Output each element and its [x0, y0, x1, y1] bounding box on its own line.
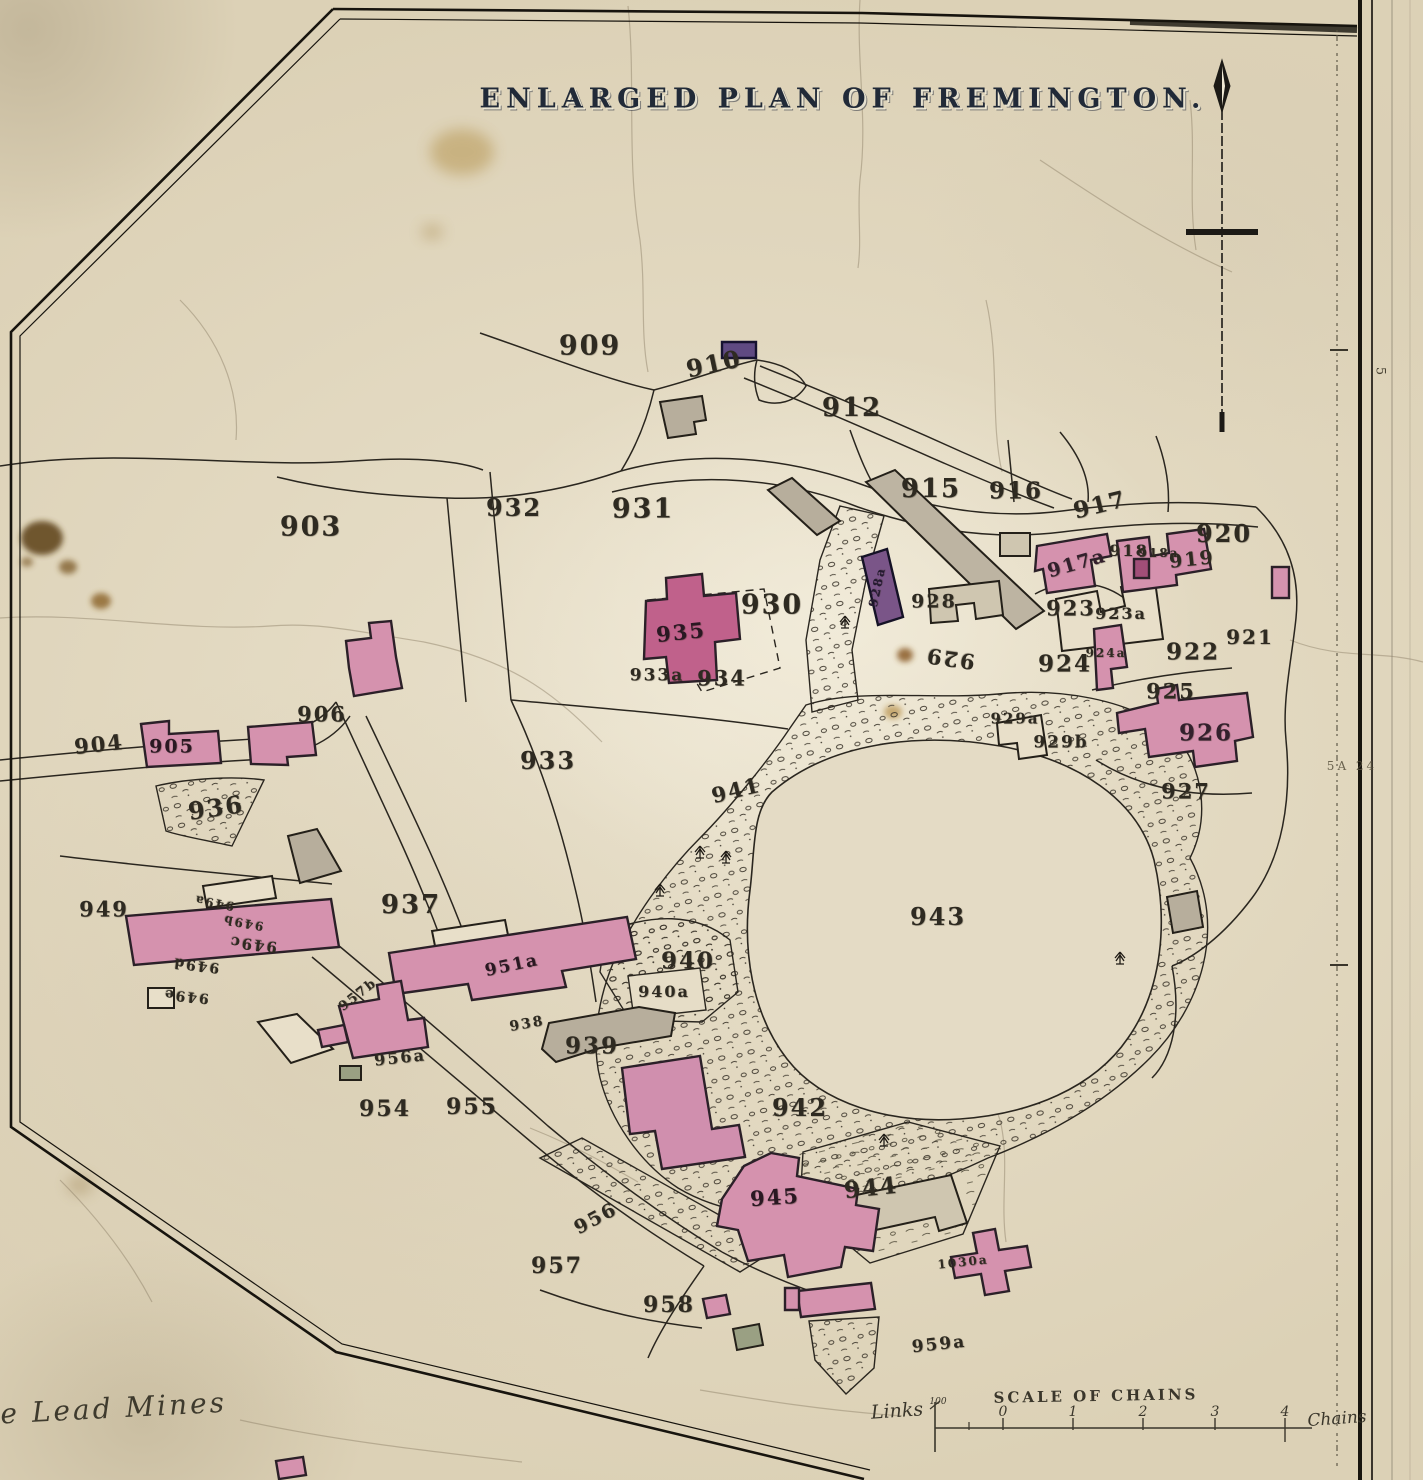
parcel-label-909: 909: [559, 333, 621, 360]
parcel-label-905: 905: [149, 738, 195, 757]
parcel-label-956a: 956a: [373, 1047, 426, 1068]
parcel-label-916: 916: [989, 480, 1043, 503]
parcel-label-931: 931: [612, 496, 674, 523]
parcel-label-925: 925: [1146, 681, 1196, 702]
parcel-label-954: 954: [359, 1098, 411, 1120]
parcel-label-926: 926: [1179, 722, 1233, 745]
parcel-label-928: 928: [911, 593, 957, 612]
parcel-label-955: 955: [446, 1096, 498, 1118]
parcel-label-924: 924: [1038, 653, 1092, 676]
parcel-label-928a: 928a: [867, 566, 887, 608]
parcel-label-923a: 923a: [1095, 606, 1147, 622]
parcel-label-949b: 949b: [222, 913, 265, 932]
parcel-label-921: 921: [1226, 627, 1274, 647]
parcel-label-935: 935: [655, 619, 707, 645]
parcel-label-944: 944: [843, 1174, 899, 1203]
parcel-label-924a: 924a: [1086, 647, 1127, 659]
parcel-label-949: 949: [79, 899, 129, 920]
parcel-label-920: 920: [1196, 522, 1252, 546]
parcel-label-929: 929: [924, 645, 976, 673]
parcel-label-904: 904: [73, 731, 125, 757]
parcel-label-919: 919: [1168, 548, 1215, 572]
parcel-label-949d: 949d: [172, 955, 220, 975]
parcel-label-958: 958: [643, 1294, 695, 1316]
parcel-label-933: 933: [520, 749, 576, 773]
parcel-label-957b: 957b: [337, 976, 380, 1013]
parcel-label-930: 930: [741, 592, 803, 619]
parcel-label-945: 945: [749, 1185, 800, 1209]
parcel-label-912: 912: [822, 395, 882, 421]
parcel-label-932: 932: [486, 496, 542, 520]
parcel-label-949e: 949e: [162, 987, 209, 1006]
parcel-label-910: 910: [684, 346, 744, 381]
parcel-label-941: 941: [709, 774, 762, 806]
parcel-label-1030a: 1030a: [937, 1253, 989, 1270]
parcel-labels-layer: 909910912915916917917a918918a91992092192…: [0, 0, 1423, 1480]
parcel-label-903: 903: [280, 514, 342, 541]
parcel-label-915: 915: [901, 476, 961, 502]
parcel-label-936: 936: [187, 792, 246, 824]
parcel-label-917: 917: [1071, 487, 1129, 522]
parcel-label-939: 939: [565, 1035, 619, 1058]
parcel-label-929b: 929b: [1033, 735, 1088, 752]
parcel-label-949a: 949a: [193, 894, 235, 913]
parcel-label-949c: 949c: [228, 934, 278, 955]
parcel-label-927: 927: [1161, 781, 1211, 802]
parcel-label-938: 938: [508, 1014, 545, 1034]
parcel-label-917a: 917a: [1046, 547, 1109, 582]
parcel-label-923: 923: [1046, 598, 1096, 619]
parcel-label-951a: 951a: [484, 952, 541, 980]
parcel-label-942: 942: [772, 1096, 828, 1120]
parcel-label-933a: 933a: [630, 668, 685, 685]
parcel-label-929a: 929a: [990, 712, 1039, 727]
parcel-label-957: 957: [531, 1255, 583, 1277]
parcel-label-922: 922: [1166, 641, 1220, 664]
parcel-label-943: 943: [910, 905, 966, 929]
parcel-label-937: 937: [381, 892, 441, 918]
parcel-label-906: 906: [297, 704, 347, 725]
parcel-label-956: 956: [571, 1200, 620, 1238]
parcel-label-940a: 940a: [638, 984, 690, 1000]
text-layer: ENLARGED PLAN OF FREMINGTON. te Lead Min…: [0, 0, 1423, 1480]
map-sheet: ENLARGED PLAN OF FREMINGTON. te Lead Min…: [0, 0, 1423, 1480]
parcel-label-940: 940: [661, 950, 715, 973]
parcel-label-934: 934: [697, 668, 747, 689]
parcel-label-959a: 959a: [911, 1334, 967, 1357]
